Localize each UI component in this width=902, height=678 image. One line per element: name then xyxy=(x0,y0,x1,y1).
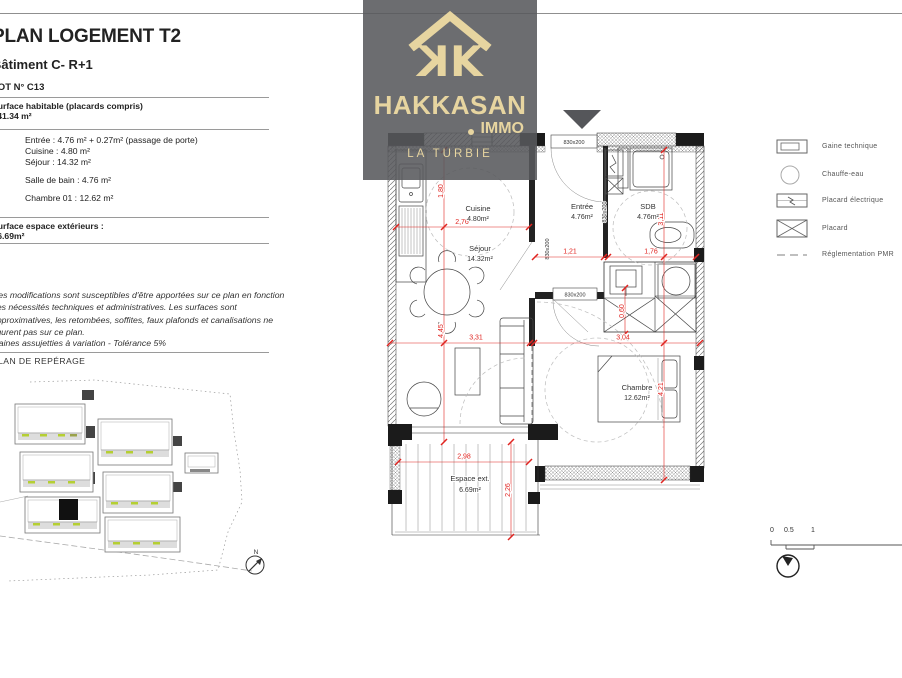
legend-row-placard: Placard xyxy=(776,218,902,238)
divider xyxy=(0,129,269,130)
placard-electrique-icon xyxy=(776,192,810,210)
room-area-sejour: 14.32m² xyxy=(467,256,493,263)
logo-k-mirrored: K xyxy=(420,38,450,86)
dim-placard-depth: 0,60 xyxy=(619,304,626,318)
highlighted-lot xyxy=(59,499,78,520)
scale-tick-0: 0 xyxy=(770,527,774,534)
legend-label: Placard électrique xyxy=(822,197,883,204)
placard-icon xyxy=(776,218,810,240)
door-label-bedroom: 830x200 xyxy=(564,293,585,299)
room-label-sejour: Séjour xyxy=(469,244,491,253)
dim-cuisine-depth: 1,80 xyxy=(438,184,445,198)
logo-suffix: IMMO xyxy=(468,120,524,138)
surface-exterieur-label: Surface espace extérieurs : xyxy=(0,221,104,231)
page-title: PLAN LOGEMENT T2 xyxy=(0,26,181,48)
room-label-entree: Entrée xyxy=(571,202,593,211)
logo-monogram: KK xyxy=(363,38,537,86)
site-buildings xyxy=(15,390,218,552)
surface-habitable: Surface habitable (placards compris) : 4… xyxy=(0,101,143,121)
legend-row-chauffe-eau: Chauffe-eau xyxy=(776,164,902,184)
logo-k: K xyxy=(450,37,480,86)
logo-location: LA TURBIE xyxy=(363,148,537,160)
gaine-technique-icon xyxy=(776,138,810,156)
surface-habitable-label: Surface habitable (placards compris) xyxy=(0,101,143,111)
divider xyxy=(0,217,269,218)
dim-chambre-height: 4,21 xyxy=(658,382,665,396)
room-label-espace-ext: Espace ext. xyxy=(450,474,489,483)
room-surfaces-group3: Chambre 01 : 12.62 m² xyxy=(25,193,113,204)
chauffe-eau-icon xyxy=(776,164,810,186)
scale-tick-05: 0.5 xyxy=(784,527,794,534)
divider xyxy=(0,97,269,98)
disclaimer-text: Des modifications sont susceptibles d'êt… xyxy=(0,289,292,339)
room-surfaces-group1: Entrée : 4.76 m² + 0.27m² (passage de po… xyxy=(25,135,198,168)
plan-page: { "page": { "title": "PLAN LOGEMENT T2",… xyxy=(0,0,902,678)
dim-sdb-height: 3,11 xyxy=(658,212,665,225)
dim-sejour-height: 4,45 xyxy=(438,324,445,338)
legend-row-pmr: Réglementation PMR xyxy=(776,248,902,268)
building-label: Bâtiment C- R+1 xyxy=(0,57,93,72)
divider xyxy=(0,352,269,353)
legend-row-placard-electrique: Placard électrique xyxy=(776,192,902,212)
tolerance-text: Gaines assujetties à variation - Toléran… xyxy=(0,338,166,348)
reglementation-pmr-icon xyxy=(776,248,810,262)
surface-habitable-value: : 41.34 m² xyxy=(0,111,32,121)
lot-label: LOT N° C13 xyxy=(0,82,44,93)
dim-balcon-depth: 2,26 xyxy=(505,483,512,497)
north-label: N xyxy=(254,549,259,556)
door-label-entrance: 830x200 xyxy=(563,140,584,146)
room-area-chambre: 12.62m² xyxy=(624,395,650,402)
logo-suffix-text: IMMO xyxy=(480,120,524,138)
scale-tick-1: 1 xyxy=(811,527,815,534)
room-area-cuisine: 4.80m² xyxy=(467,216,489,223)
walls xyxy=(388,133,704,489)
legend-label: Placard xyxy=(822,225,848,232)
legend-label: Gaine technique xyxy=(822,143,877,150)
room-area-sdb: 4.76m² xyxy=(637,214,659,221)
legend-row-gaine: Gaine technique xyxy=(776,138,902,158)
dim-chambre-width: 3,04 xyxy=(616,335,630,342)
scale-bar xyxy=(770,539,902,551)
room-label-cuisine: Cuisine xyxy=(465,204,490,213)
door-label-sejour: 830x200 xyxy=(545,238,551,259)
legend-label: Chauffe-eau xyxy=(822,171,864,178)
dim-balcon-width: 2,98 xyxy=(457,454,471,461)
site-north-compass: N xyxy=(246,549,264,574)
logo-dot-icon xyxy=(468,129,474,135)
entrance-marker-icon xyxy=(563,110,601,129)
room-labels: Cuisine 4.80m² Séjour 14.32m² Entrée 4.7… xyxy=(450,202,659,494)
site-map: N xyxy=(0,374,268,586)
logo-brand-name: HAKKASAN xyxy=(363,90,537,121)
room-label-sdb: SDB xyxy=(640,202,655,211)
door-label-sdb: 830x200 xyxy=(602,201,608,222)
reperage-title: PLAN DE REPÉRAGE xyxy=(0,356,85,366)
agency-logo: KK HAKKASAN IMMO LA TURBIE xyxy=(363,0,537,180)
dim-sejour-width: 3,31 xyxy=(469,335,483,342)
legend-label: Réglementation PMR xyxy=(822,251,894,258)
divider xyxy=(0,243,269,244)
plan-north-compass xyxy=(774,552,802,580)
room-label-chambre: Chambre xyxy=(622,383,653,392)
dim-sdb-width: 1,76 xyxy=(644,249,658,256)
room-surfaces-group2: Salle de bain : 4.76 m² xyxy=(25,175,111,186)
room-area-entree: 4.76m² xyxy=(571,214,593,221)
room-area-espace-ext: 6.69m² xyxy=(459,487,481,494)
dim-entree-width: 1,21 xyxy=(563,249,577,256)
surface-exterieur-value: : 6.69m² xyxy=(0,231,24,241)
